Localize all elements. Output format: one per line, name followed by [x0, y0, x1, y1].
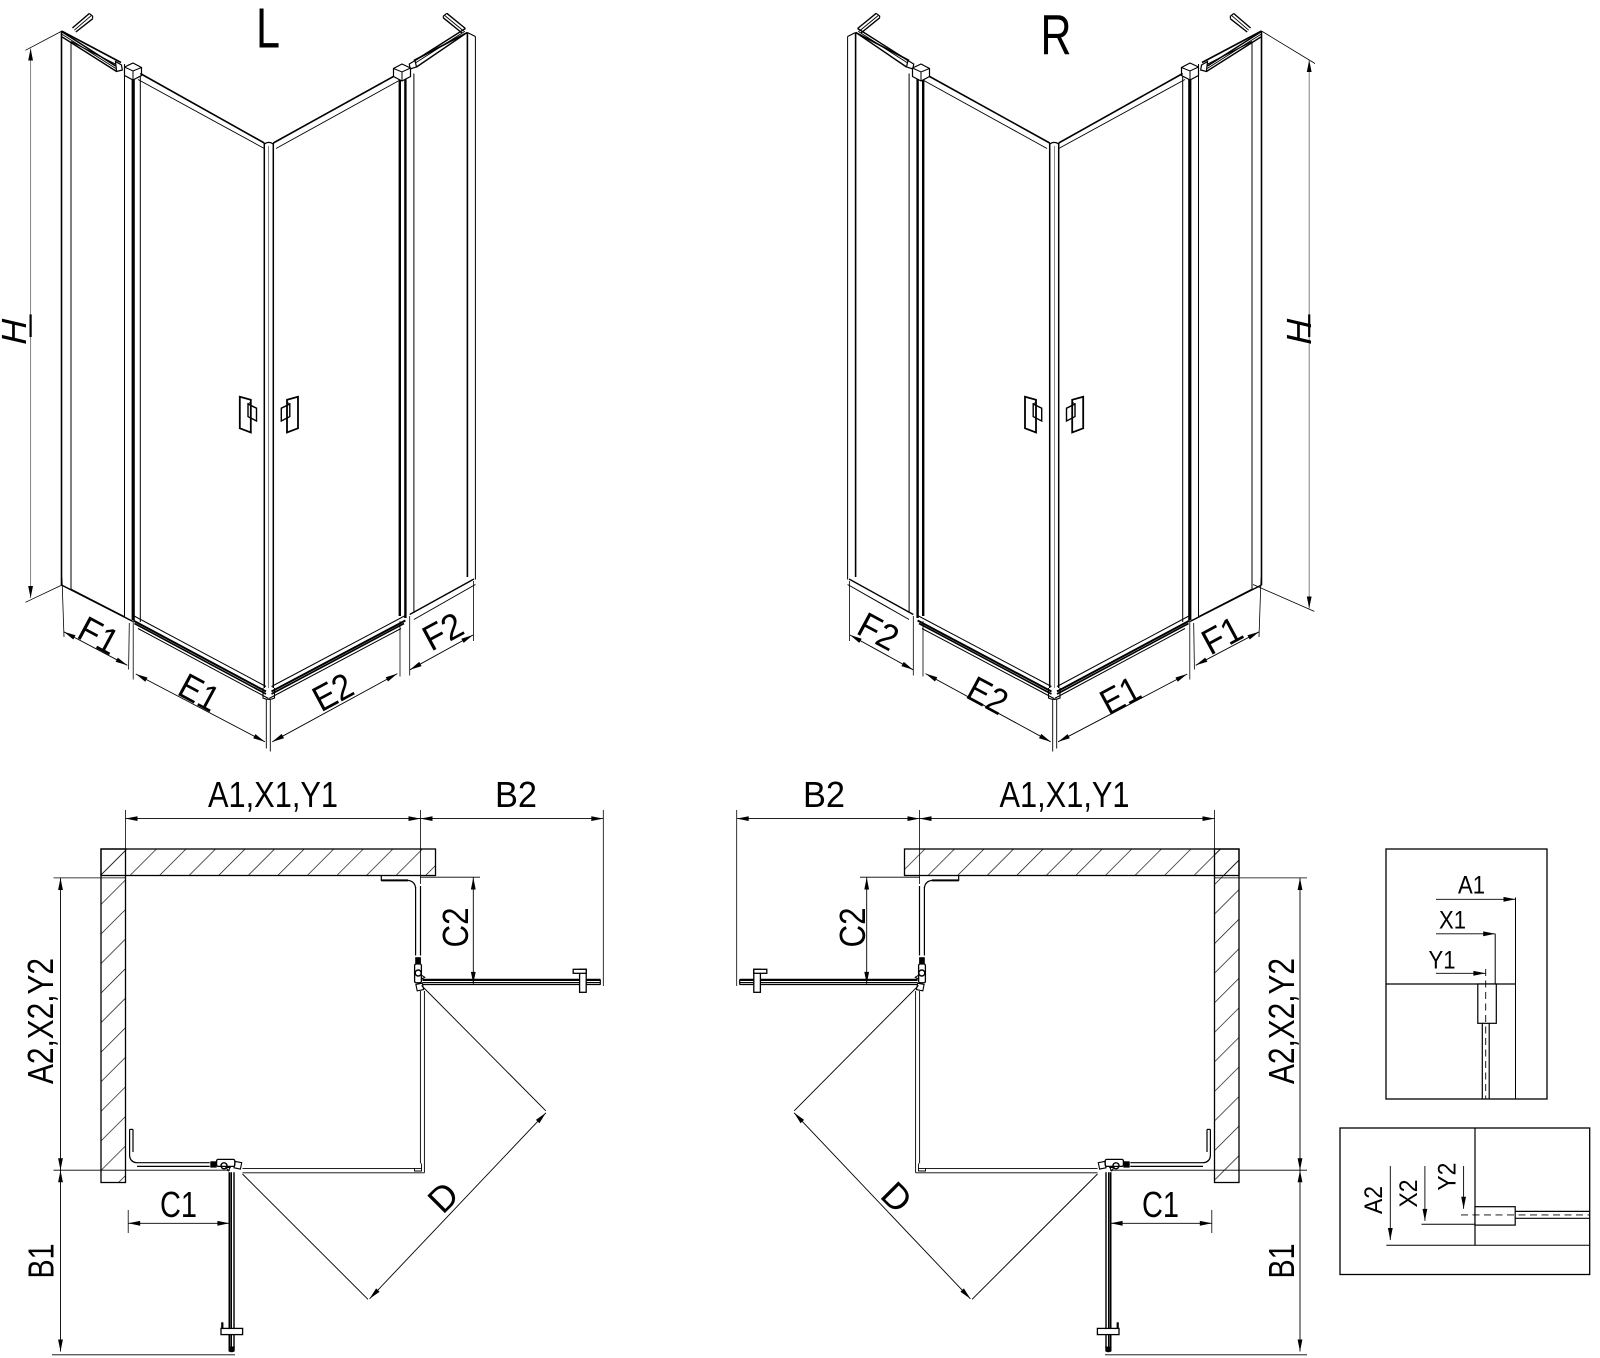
svg-text:C2: C2 — [435, 908, 476, 948]
svg-text:A2,X2,Y2: A2,X2,Y2 — [20, 958, 61, 1084]
svg-text:B1: B1 — [20, 1244, 61, 1279]
svg-text:A1,X1,Y1: A1,X1,Y1 — [208, 774, 338, 815]
svg-text:X1: X1 — [1439, 907, 1466, 935]
svg-text:C2: C2 — [832, 908, 873, 948]
svg-text:A2: A2 — [1360, 1186, 1388, 1214]
svg-text:R: R — [1041, 3, 1072, 67]
svg-text:Y2: Y2 — [1434, 1163, 1462, 1191]
svg-text:Y1: Y1 — [1429, 947, 1456, 975]
svg-text:C1: C1 — [1142, 1184, 1179, 1225]
svg-text:A1: A1 — [1458, 872, 1485, 900]
svg-text:B2: B2 — [803, 774, 845, 815]
svg-text:A1,X1,Y1: A1,X1,Y1 — [1000, 774, 1130, 815]
svg-text:B2: B2 — [495, 774, 537, 815]
svg-text:X2: X2 — [1395, 1180, 1423, 1208]
svg-text:L: L — [256, 0, 280, 61]
svg-text:B1: B1 — [1261, 1244, 1302, 1279]
svg-text:C1: C1 — [160, 1184, 197, 1225]
svg-text:A2,X2,Y2: A2,X2,Y2 — [1261, 958, 1302, 1084]
